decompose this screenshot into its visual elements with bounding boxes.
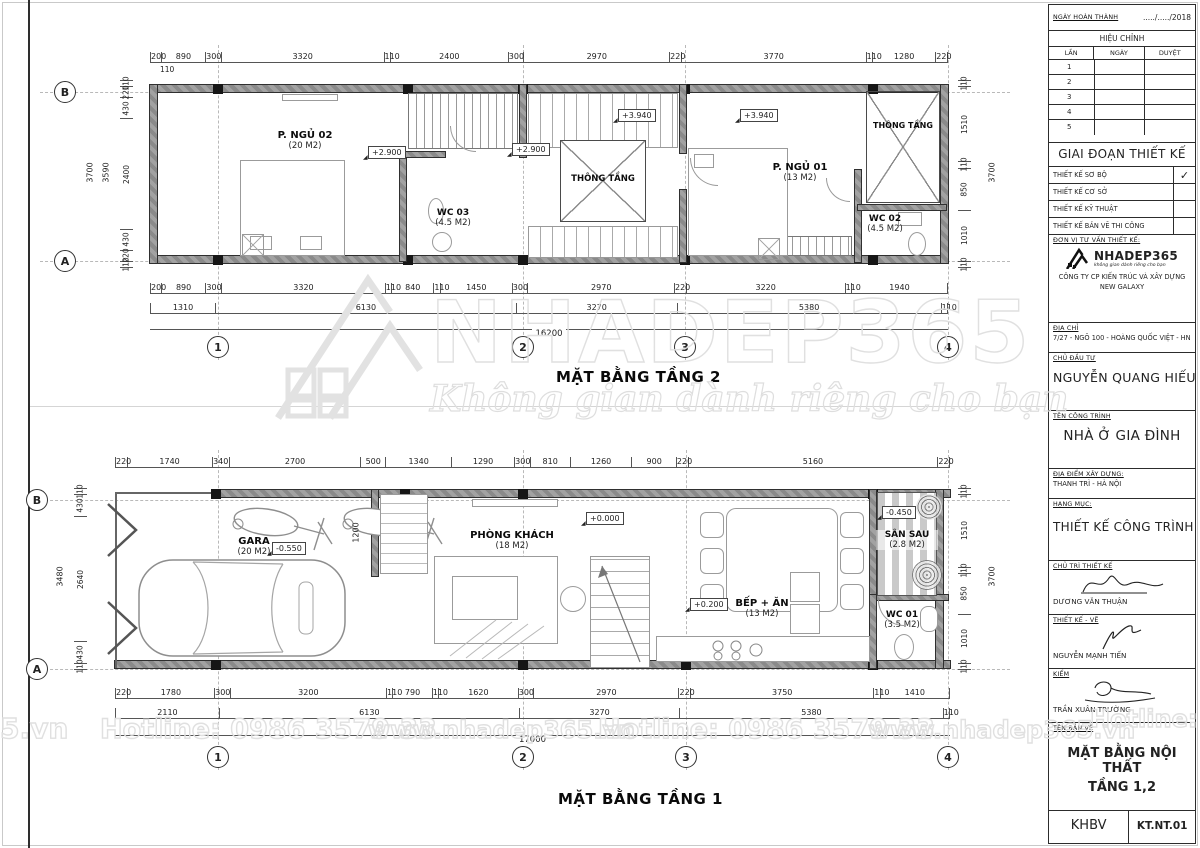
dimension-value: 430 xyxy=(74,495,87,516)
f1-level-marker: -0.550 xyxy=(272,542,306,555)
dimension-value: 890 xyxy=(162,283,207,293)
f2-wc03-sink-icon xyxy=(432,232,452,252)
dimension-value: 2970 xyxy=(524,52,670,62)
signature-icon xyxy=(1077,570,1167,596)
f2-dims-right: 11015101108501010110 xyxy=(958,80,971,268)
dimension-value: 1510 xyxy=(958,495,971,567)
dimension-value: 2970 xyxy=(534,688,679,698)
f2-column xyxy=(213,84,223,94)
dimension-value: 110 xyxy=(120,262,133,267)
f1-stairs-arrow-icon xyxy=(590,556,650,668)
dimension-value: 300 xyxy=(515,457,530,467)
dimension-value: 1010 xyxy=(958,615,971,664)
f1-level-marker: +0.200 xyxy=(690,598,728,611)
f2-room-pngu02: P. NGỦ 02 (20 M2) xyxy=(252,130,358,151)
title-block: NGÀY HOÀN THÀNH ...../...../2018 HIỆU CH… xyxy=(1048,4,1196,844)
signature-icon xyxy=(1077,624,1167,650)
tb-drawing-line2: TẦNG 1,2 xyxy=(1053,780,1191,795)
f1-shelf-icon xyxy=(380,494,428,574)
f2-room-wc02: WC 02 (4.5 M2) xyxy=(862,214,908,234)
tb-completion-label: NGÀY HOÀN THÀNH xyxy=(1053,14,1118,21)
dimension-value: 220 xyxy=(938,457,949,467)
tb-signer-name: DƯƠNG VĂN THUẬN xyxy=(1053,597,1191,606)
tb-consultant: ĐƠN VỊ TƯ VẤN THIẾT KẾ: NHADEP365 không … xyxy=(1049,235,1195,323)
tb-completion-value: ...../...../2018 xyxy=(1118,13,1191,22)
grid-bubble-3b: 3 xyxy=(675,746,697,768)
grid-bubble-2: 2 xyxy=(512,336,534,358)
dimension-value: 900 xyxy=(632,457,676,467)
tb-phase-item: THIẾT KẾ CƠ SỞ xyxy=(1049,184,1195,201)
dimension-value: 1310 xyxy=(151,303,216,313)
dimension-value: 1280 xyxy=(873,52,936,62)
dimension-value: 6130 xyxy=(216,303,517,313)
f1-dims-bottom2: 2110613032705380110 xyxy=(115,708,950,719)
dimension-value: 810 xyxy=(531,457,571,467)
f1-room-phongkhach: PHÒNG KHÁCH (18 M2) xyxy=(462,530,562,551)
tb-category: HẠNG MỤC: THIẾT KẾ CÔNG TRÌNH xyxy=(1049,499,1195,561)
dimension-value: 220 xyxy=(677,457,689,467)
tb-owner-value: NGUYỄN QUANG HIẾU xyxy=(1053,370,1191,385)
f1-wc01-toilet-icon xyxy=(894,634,914,660)
dimension-value: 3270 xyxy=(517,303,678,313)
tb-address: ĐỊA CHỈ 7/27 - NGÕ 100 - HOÀNG QUỐC VIỆT… xyxy=(1049,323,1195,353)
dimension-value: 110 xyxy=(958,664,971,669)
grid-bubble-4b: 4 xyxy=(937,746,959,768)
dimension-value: 300 xyxy=(206,52,222,62)
f1-dims-left: 1104302640430110 xyxy=(74,488,87,670)
f1-dims-top: 2201740340270050013401290300810126090022… xyxy=(115,457,950,468)
tb-revision-row: 3 xyxy=(1049,90,1195,105)
f1-chair-icon xyxy=(700,548,724,574)
dimension-value: 2970 xyxy=(528,283,675,293)
tb-footer-left: KHBV xyxy=(1049,811,1129,843)
grid-bubble-3: 3 xyxy=(674,336,696,358)
dimension-value: 1940 xyxy=(852,283,947,293)
dimension-value: 850 xyxy=(958,574,971,615)
dimension-value: 300 xyxy=(215,688,231,698)
dimension-value: 110 xyxy=(944,708,949,718)
grid-bubble-1: 1 xyxy=(207,336,229,358)
f2-wc02-toilet-icon xyxy=(908,232,926,256)
f2-room-thongtang-right: THÔNG TẦNG xyxy=(866,121,940,130)
grid-bubble-A: A xyxy=(54,250,76,272)
f2-room-wc03: WC 03 (4.5 M2) xyxy=(418,208,488,228)
tb-signer-name: TRẦN XUÂN TRƯỜNG xyxy=(1053,705,1191,714)
tb-rev-col: LẦN xyxy=(1049,47,1094,59)
f1-tv-icon xyxy=(472,499,558,507)
tb-location-value: THANH TRÌ - HÀ NỘI xyxy=(1053,480,1191,488)
dimension-value: 3200 xyxy=(231,688,387,698)
dimension-value: 1410 xyxy=(881,688,949,698)
f2-level-marker: +2.900 xyxy=(368,146,406,159)
dimension-value: 5380 xyxy=(680,708,943,718)
tb-footer-right: KT.NT.01 xyxy=(1129,811,1195,843)
f2-level-marker: +3.940 xyxy=(618,109,656,122)
dimension-value: 110 xyxy=(74,664,87,669)
dimension-value: 1340 xyxy=(386,457,452,467)
tb-revision-cols: LẦN NGÀY DUYỆT xyxy=(1049,47,1195,60)
grid-bubble-B: B xyxy=(54,81,76,103)
f1-garage-front-line xyxy=(115,492,217,494)
dimension-value: 1450 xyxy=(441,283,513,293)
f1-room-sansau: SÂN SAU (2.8 M2) xyxy=(876,530,938,550)
f1-rug-icon xyxy=(446,616,556,660)
f2-wall-right xyxy=(941,85,948,263)
dimension-value: 3770 xyxy=(682,52,867,62)
f1-armchair-icon xyxy=(560,586,586,612)
f2-fan-icon xyxy=(758,238,780,260)
dimension-value: 3270 xyxy=(520,708,680,718)
dimension-value: 5380 xyxy=(678,303,942,313)
f2-dims-top: 2008903003320110240030029702203770110128… xyxy=(150,52,948,63)
tb-signature-3: KIỂM TRẦN XUÂN TRƯỜNG xyxy=(1049,669,1195,723)
f2-dim-sub: 110 xyxy=(160,65,174,74)
dimension-value: 200 xyxy=(151,52,162,62)
f1-coffee-table-icon xyxy=(452,576,518,620)
dimension-value: 300 xyxy=(509,52,525,62)
grid-bubble-B2: B xyxy=(26,489,48,511)
dimension-value: 2400 xyxy=(120,119,133,230)
tb-drawing-line1: MẶT BẰNG NỘI THẤT xyxy=(1053,746,1191,776)
dimension-value: 2640 xyxy=(74,517,87,643)
tb-rev-col: NGÀY xyxy=(1094,47,1144,59)
f2-column xyxy=(868,255,878,265)
tb-revision-row: 2 xyxy=(1049,75,1195,90)
tb-drawing-name: TÊN BẢN VẼ MẶT BẰNG NỘI THẤT TẦNG 1,2 xyxy=(1049,723,1195,811)
dimension-value: 220 xyxy=(679,688,691,698)
tb-signature-1: CHỦ TRÌ THIẾT KẾ DƯƠNG VĂN THUẬN xyxy=(1049,561,1195,615)
tb-phase-item: THIẾT KẾ SƠ BỘ ✓ xyxy=(1049,167,1195,184)
f1-dims-bottom1: 2201780300320011079011016203002970220375… xyxy=(115,688,950,699)
f2-fan-icon xyxy=(242,234,264,256)
tb-revision-row: 4 xyxy=(1049,105,1195,120)
dimension-value: 1740 xyxy=(128,457,213,467)
tb-phase-list: THIẾT KẾ SƠ BỘ ✓ THIẾT KẾ CƠ SỞ THIẾT KẾ… xyxy=(1049,167,1195,235)
tb-category-value: THIẾT KẾ CÔNG TRÌNH xyxy=(1053,520,1191,534)
f1-chair-icon xyxy=(700,512,724,538)
dimension-value: 200 xyxy=(151,283,162,293)
f2-room-pngu01: P. NGỦ 01 (13 M2) xyxy=(752,162,848,183)
f1-stove-icon xyxy=(706,638,772,662)
f2-wall-wc02-left xyxy=(855,170,861,262)
f1-wall-wc01-left xyxy=(870,595,876,668)
dimension-value: 6130 xyxy=(220,708,520,718)
grid-bubble-4: 4 xyxy=(937,336,959,358)
f1-column xyxy=(211,489,221,499)
f1-dim-total: 17000 xyxy=(115,726,950,736)
dimension-value: 2110 xyxy=(116,708,220,718)
grid-bubble-A2: A xyxy=(26,658,48,680)
frame-left-line xyxy=(28,0,30,848)
tb-project-value: NHÀ Ở GIA ĐÌNH xyxy=(1053,428,1191,444)
dimension-value: 340 xyxy=(213,457,230,467)
tb-revision-title: HIỆU CHỈNH xyxy=(1049,31,1195,47)
f2-dims-bottom1: 2008903003320110840110145030029702203220… xyxy=(150,283,948,294)
dimension-value: 3320 xyxy=(222,52,385,62)
dimension-value: 300 xyxy=(206,283,222,293)
f2-room-thongtang-mid: THÔNG TẦNG xyxy=(560,174,646,184)
tb-phase-title: GIAI ĐOẠN THIẾT KẾ xyxy=(1049,143,1195,167)
f1-room-wc01: WC 01 (3.5 M2) xyxy=(876,610,928,630)
dimension-value: 220 xyxy=(675,283,687,293)
tb-brand: NHADEP365 xyxy=(1094,249,1178,263)
grid-bubble-1b: 1 xyxy=(207,746,229,768)
signature-icon xyxy=(1077,678,1167,704)
check-icon: ✓ xyxy=(1173,167,1195,183)
dimension-value: 1510 xyxy=(958,87,971,162)
f1-room-bepan: BẾP + ĂN (13 M2) xyxy=(716,598,808,619)
floor1-title: MẶT BẰNG TẦNG 1 xyxy=(558,790,723,808)
f2-right-total: 3700 xyxy=(988,162,997,182)
dimension-value: 430 xyxy=(120,98,133,119)
dimension-value: 2700 xyxy=(230,457,361,467)
tb-brand-tagline: không gian dành riêng cho bạn xyxy=(1094,263,1178,268)
dimension-value: 5160 xyxy=(689,457,939,467)
dimension-value: 220 xyxy=(936,52,947,62)
f2-left-total2: 3700 xyxy=(86,162,95,182)
tb-logo: NHADEP365 không gian dành riêng cho bạn xyxy=(1053,247,1191,269)
floor2-title: MẶT BẰNG TẦNG 2 xyxy=(556,368,721,386)
f2-dims-left: 1102204302400430220110 xyxy=(120,80,133,268)
tb-address-value: 7/27 - NGÕ 100 - HOÀNG QUỐC VIỆT - HN xyxy=(1053,334,1191,342)
tb-signer-name: NGUYỄN MẠNH TIẾN xyxy=(1053,651,1191,660)
tb-phase-item: THIẾT KẾ KỸ THUẬT xyxy=(1049,201,1195,218)
f1-level-marker: -0.450 xyxy=(882,506,916,519)
f2-tv-icon xyxy=(282,94,338,101)
tb-rev-col: DUYỆT xyxy=(1145,47,1195,59)
f1-column xyxy=(518,489,528,499)
grid-bubble-2b: 2 xyxy=(512,746,534,768)
f2-column xyxy=(213,255,223,265)
f2-dims-bottom2: 1310613032705380110 xyxy=(150,303,948,314)
dimension-value: 220 xyxy=(116,688,128,698)
f1-left-total: 3480 xyxy=(56,566,65,586)
grid-line-4b xyxy=(948,450,949,770)
f2-wall-left xyxy=(150,85,157,263)
dimension-value: 850 xyxy=(958,169,971,212)
f2-left-total1: 3590 xyxy=(102,162,111,182)
plans-divider xyxy=(30,406,1046,407)
tb-completion: NGÀY HOÀN THÀNH ...../...../2018 xyxy=(1049,5,1195,31)
dimension-value: 300 xyxy=(513,283,529,293)
dimension-value: 220 xyxy=(116,457,128,467)
dimension-value: 3750 xyxy=(691,688,874,698)
f1-chair-icon xyxy=(840,548,864,574)
f1-column xyxy=(518,660,528,670)
f1-chair-icon xyxy=(840,512,864,538)
f2-wall-grid3-lower xyxy=(680,190,686,262)
f1-right-total: 3700 xyxy=(988,566,997,586)
house-logo-icon xyxy=(1066,247,1092,269)
dimension-value: 1620 xyxy=(439,688,519,698)
f2-level-marker: +2.900 xyxy=(512,143,550,156)
dimension-value: 790 xyxy=(393,688,432,698)
tb-revision-rows: 12345 xyxy=(1049,60,1195,135)
dimension-value: 110 xyxy=(942,303,947,313)
tb-company: CÔNG TY CP KIẾN TRÚC VÀ XÂY DỰNG NEW GAL… xyxy=(1053,273,1191,293)
dimension-value: 110 xyxy=(958,262,971,267)
f1-inner-dim: 1200 xyxy=(352,522,361,542)
tb-revision-row: 5 xyxy=(1049,120,1195,135)
f2-dim-total: 16200 xyxy=(150,320,948,330)
tb-phase-item: THIẾT KẾ BẢN VẼ THI CÔNG xyxy=(1049,218,1195,235)
f2-wall-top xyxy=(150,85,948,92)
dimension-value: 3320 xyxy=(222,283,386,293)
f2-bed2-pillow-icon xyxy=(300,236,322,250)
dimension-value: 1260 xyxy=(571,457,633,467)
f2-stairs-lower xyxy=(528,226,678,258)
f1-plant-icon xyxy=(916,494,942,520)
tb-signature-2: THIẾT KẾ - VẼ NGUYỄN MẠNH TIẾN xyxy=(1049,615,1195,669)
f2-wall-wc02-top xyxy=(858,205,946,210)
dimension-value: 840 xyxy=(392,283,434,293)
dimension-value: 1010 xyxy=(958,211,971,261)
f1-plant-icon xyxy=(912,560,942,590)
f1-level-marker: +0.000 xyxy=(586,512,624,525)
f2-column xyxy=(518,255,528,265)
dimension-value: 2400 xyxy=(391,52,509,62)
f1-chair-icon xyxy=(840,584,864,610)
f1-car-icon xyxy=(133,552,351,664)
f2-void-rear xyxy=(866,91,940,203)
tb-location: ĐỊA ĐIỂM XÂY DỰNG: THANH TRÌ - HÀ NỘI xyxy=(1049,469,1195,499)
tb-revision-row: 1 xyxy=(1049,60,1195,75)
f1-dining-table-icon xyxy=(726,508,838,612)
dimension-value: 1780 xyxy=(128,688,215,698)
dimension-value: 890 xyxy=(162,52,206,62)
tb-owner: CHỦ ĐẦU TƯ NGUYỄN QUANG HIẾU xyxy=(1049,353,1195,411)
f1-dims-right: 11015101108501010110 xyxy=(958,488,971,670)
tb-revision: HIỆU CHỈNH LẦN NGÀY DUYỆT 12345 xyxy=(1049,31,1195,143)
tb-project: TÊN CÔNG TRÌNH NHÀ Ở GIA ĐÌNH xyxy=(1049,411,1195,469)
dimension-value: 1290 xyxy=(452,457,515,467)
dimension-value: 220 xyxy=(670,52,682,62)
dimension-value: 3220 xyxy=(687,283,846,293)
f2-level-marker: +3.940 xyxy=(740,109,778,122)
f2-wall-wc03-left xyxy=(400,155,406,261)
dimension-value: 220 xyxy=(120,87,133,98)
dimension-value: 500 xyxy=(361,457,386,467)
tb-footer: KHBV KT.NT.01 xyxy=(1049,811,1195,843)
dimension-value: 300 xyxy=(519,688,535,698)
f2-wall-grid3-upper xyxy=(680,85,686,153)
